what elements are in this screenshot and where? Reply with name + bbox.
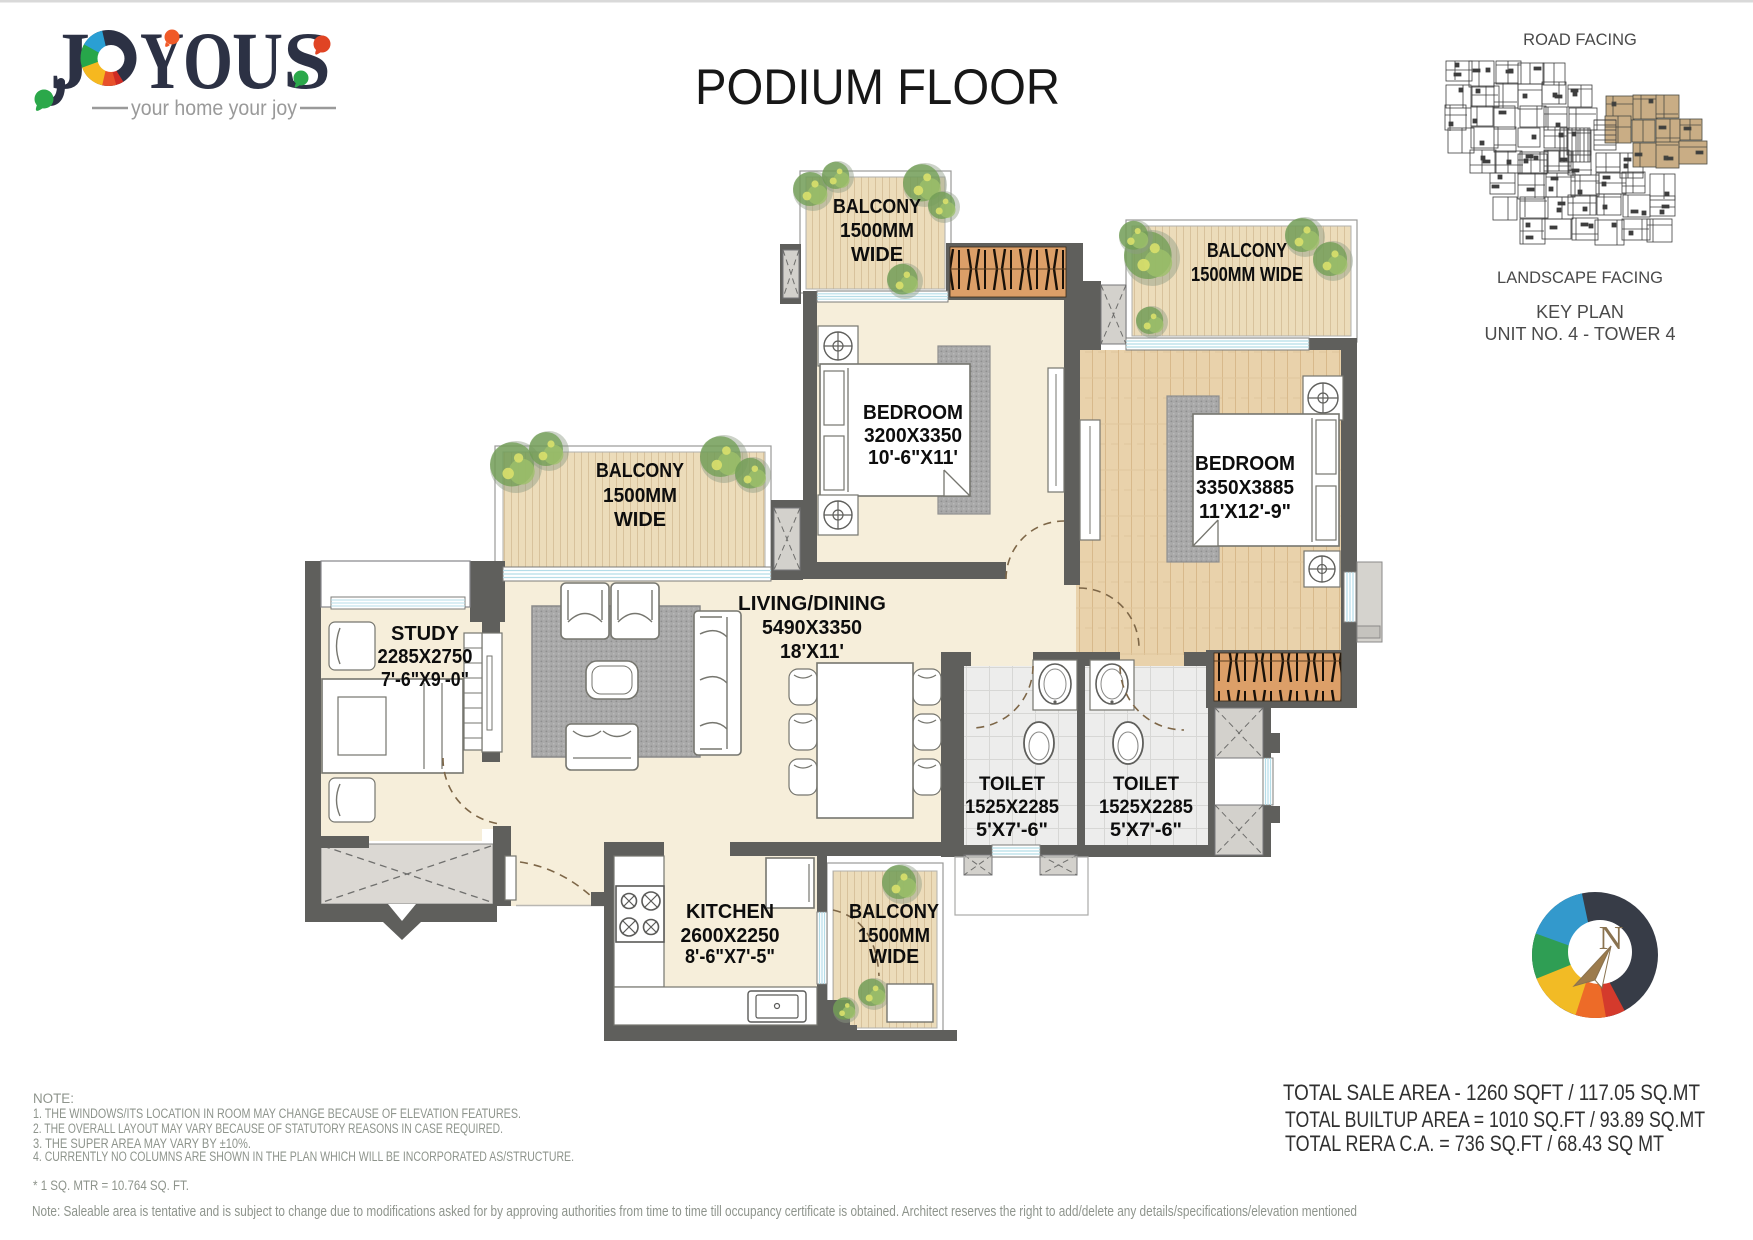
svg-text:1500MM: 1500MM	[603, 485, 677, 507]
svg-text:1500MM: 1500MM	[858, 925, 930, 947]
svg-text:your home your joy: your home your joy	[131, 97, 297, 120]
svg-text:WIDE: WIDE	[614, 509, 666, 531]
svg-text:2600X2250: 2600X2250	[681, 925, 780, 947]
svg-text:4. CURRENTLY NO COLUMNS ARE SH: 4. CURRENTLY NO COLUMNS ARE SHOWN IN THE…	[33, 1149, 574, 1164]
svg-text:WIDE: WIDE	[851, 244, 903, 266]
svg-text:2. THE OVERALL LAYOUT MAY VARY: 2. THE OVERALL LAYOUT MAY VARY BECAUSE O…	[33, 1121, 503, 1136]
svg-text:BEDROOM: BEDROOM	[1195, 453, 1295, 475]
svg-text:TOTAL RERA C.A. = 736 SQ.FT /: TOTAL RERA C.A. = 736 SQ.FT / 68.43 SQ M…	[1285, 1131, 1664, 1156]
svg-text:1500MM: 1500MM	[840, 220, 914, 242]
svg-text:7'-6"X9'-0": 7'-6"X9'-0"	[381, 669, 469, 691]
svg-text:5'X7'-6": 5'X7'-6"	[976, 820, 1048, 841]
svg-text:1500MM WIDE: 1500MM WIDE	[1191, 264, 1303, 286]
svg-text:3200X3350: 3200X3350	[864, 425, 962, 447]
svg-text:PODIUM FLOOR: PODIUM FLOOR	[695, 59, 1060, 115]
svg-text:BEDROOM: BEDROOM	[863, 402, 963, 424]
svg-text:10'-6"X11': 10'-6"X11'	[868, 447, 958, 469]
svg-text:TOILET: TOILET	[1113, 774, 1179, 795]
svg-text:U: U	[232, 15, 283, 106]
svg-text:BALCONY: BALCONY	[849, 901, 940, 923]
svg-text:STUDY: STUDY	[391, 623, 460, 645]
svg-text:5490X3350: 5490X3350	[762, 617, 862, 639]
svg-text:KEY PLAN: KEY PLAN	[1536, 302, 1624, 322]
svg-text:BALCONY: BALCONY	[833, 196, 922, 218]
svg-text:WIDE: WIDE	[869, 946, 919, 968]
svg-text:Note: Saleable area is tentati: Note: Saleable area is tentative and is …	[32, 1204, 1357, 1220]
svg-text:TOTAL BUILTUP AREA = 1010 SQ.F: TOTAL BUILTUP AREA = 1010 SQ.FT / 93.89 …	[1285, 1107, 1705, 1132]
svg-text:NOTE:: NOTE:	[33, 1091, 74, 1106]
svg-text:TOTAL SALE AREA - 1260 SQFT /: TOTAL SALE AREA - 1260 SQFT / 117.05 SQ.…	[1283, 1080, 1700, 1105]
svg-text:1525X2285: 1525X2285	[965, 797, 1059, 818]
svg-text:O: O	[183, 15, 233, 106]
svg-text:N: N	[1599, 920, 1624, 957]
svg-text:LANDSCAPE FACING: LANDSCAPE FACING	[1497, 269, 1663, 287]
svg-text:S: S	[283, 15, 331, 106]
svg-text:8'-6"X7'-5": 8'-6"X7'-5"	[685, 946, 775, 968]
svg-text:UNIT NO. 4 - TOWER 4: UNIT NO. 4 - TOWER 4	[1484, 324, 1675, 344]
svg-text:LIVING/DINING: LIVING/DINING	[738, 593, 886, 615]
svg-text:Y: Y	[140, 15, 184, 106]
svg-text:ROAD FACING: ROAD FACING	[1523, 31, 1637, 49]
svg-text:KITCHEN: KITCHEN	[686, 901, 774, 923]
svg-text:BALCONY: BALCONY	[1207, 240, 1288, 262]
svg-text:11'X12'-9": 11'X12'-9"	[1199, 501, 1291, 523]
svg-text:2285X2750: 2285X2750	[378, 646, 473, 668]
svg-text:1525X2285: 1525X2285	[1099, 797, 1193, 818]
svg-text:BALCONY: BALCONY	[596, 460, 685, 482]
svg-text:1. THE WINDOWS/ITS LOCATION IN: 1. THE WINDOWS/ITS LOCATION IN ROOM MAY …	[33, 1106, 521, 1121]
svg-text:* 1 SQ. MTR = 10.764 SQ. FT.: * 1 SQ. MTR = 10.764 SQ. FT.	[33, 1178, 189, 1193]
svg-text:TOILET: TOILET	[979, 774, 1045, 795]
svg-text:3350X3885: 3350X3885	[1196, 477, 1294, 499]
svg-text:5'X7'-6": 5'X7'-6"	[1110, 820, 1182, 841]
svg-text:18'X11': 18'X11'	[780, 641, 844, 663]
